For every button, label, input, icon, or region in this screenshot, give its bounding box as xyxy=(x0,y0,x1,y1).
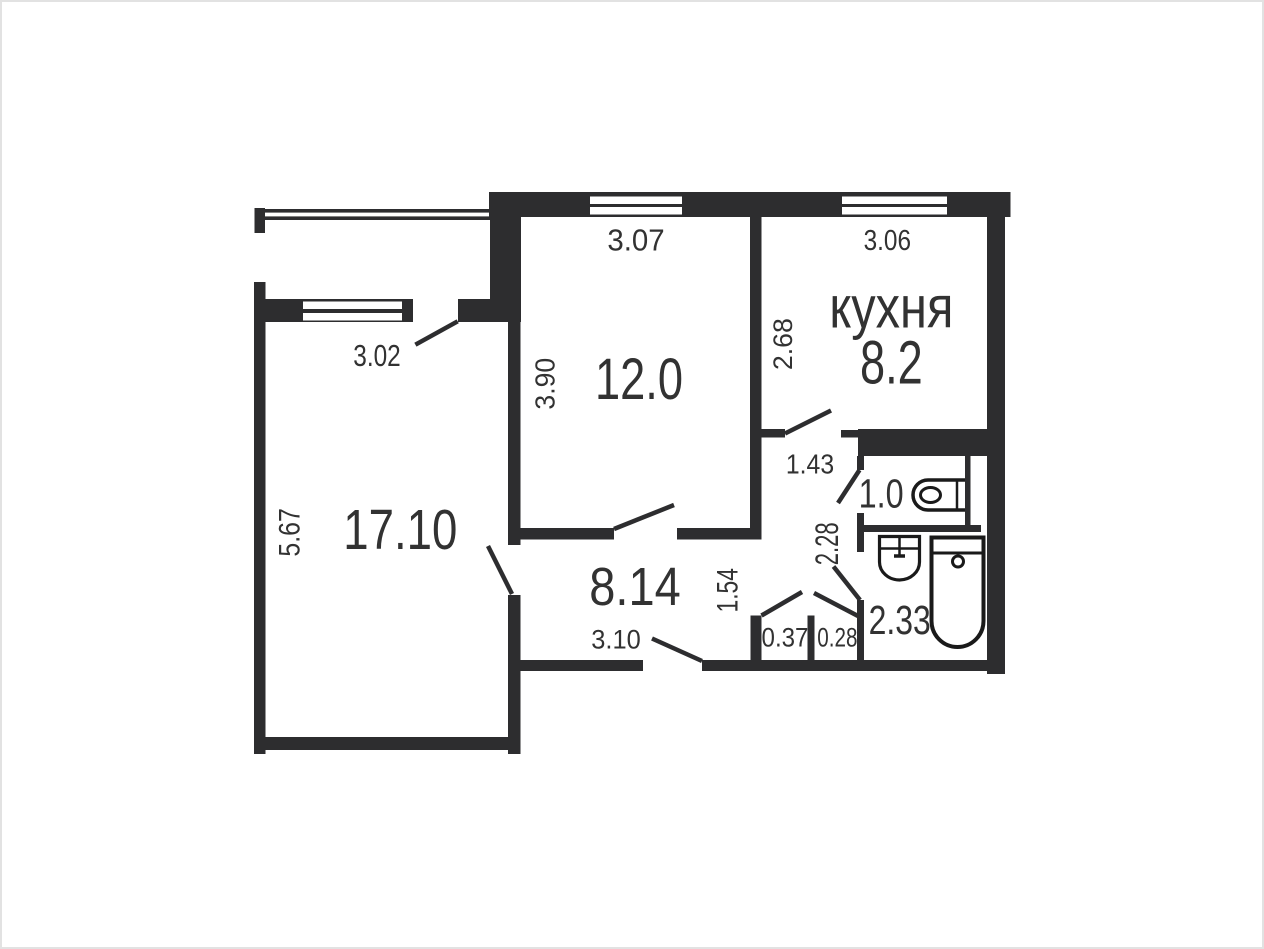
svg-text:3.07: 3.07 xyxy=(607,224,664,258)
svg-text:0.28: 0.28 xyxy=(817,623,857,653)
svg-text:3.02: 3.02 xyxy=(353,338,400,372)
svg-text:2.28: 2.28 xyxy=(809,522,845,565)
svg-text:0.37: 0.37 xyxy=(762,623,809,652)
svg-text:2.33: 2.33 xyxy=(869,597,931,643)
svg-text:2.68: 2.68 xyxy=(768,318,798,370)
svg-text:5.67: 5.67 xyxy=(272,508,306,556)
svg-text:8.14: 8.14 xyxy=(589,556,680,617)
svg-text:3.06: 3.06 xyxy=(864,224,911,256)
svg-text:8.2: 8.2 xyxy=(860,329,923,397)
svg-text:17.10: 17.10 xyxy=(343,497,457,561)
svg-text:3.90: 3.90 xyxy=(529,358,561,410)
svg-text:3.10: 3.10 xyxy=(591,624,641,655)
svg-text:1.54: 1.54 xyxy=(710,568,744,613)
svg-text:1.43: 1.43 xyxy=(786,448,834,480)
svg-text:1.0: 1.0 xyxy=(859,471,904,516)
svg-text:12.0: 12.0 xyxy=(595,348,683,413)
